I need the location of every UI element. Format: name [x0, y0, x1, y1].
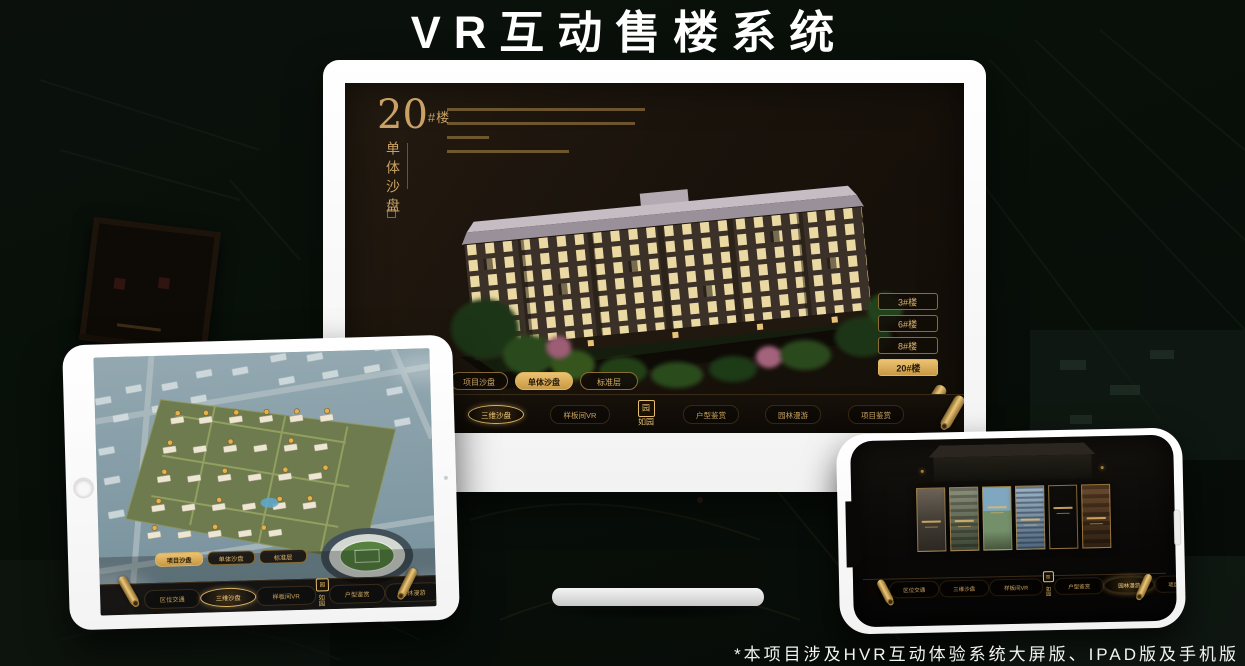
logo-seal-icon: 园	[316, 578, 329, 591]
app-logo[interactable]: 园 如园	[1043, 571, 1055, 602]
floor-button-6[interactable]: 6#楼	[878, 315, 938, 332]
scene-panel[interactable]	[949, 487, 979, 552]
tablet-app-screen: 项目沙盘 单体沙盘 标准层 区位交通 三维沙盘 样板间VR 园 如园 户型鉴赏 …	[93, 348, 436, 615]
view-tabs: 项目沙盘 单体沙盘 标准层	[450, 372, 638, 390]
nav-item-garden-roam[interactable]: 园林漫游	[765, 405, 821, 424]
nav-item-floorplans[interactable]: 户型鉴赏	[1054, 577, 1104, 595]
nav-item-project-gallery[interactable]: 项目鉴赏	[848, 405, 904, 424]
subtitle-divider-line	[407, 143, 408, 189]
app-logo[interactable]: 园 如园	[636, 400, 656, 428]
monitor-stand-base	[552, 588, 764, 606]
scene-panel-gallery	[916, 484, 1111, 552]
nav-item-3d-sandbox[interactable]: 三维沙盘	[939, 579, 989, 597]
scene-panel[interactable]	[1048, 485, 1078, 550]
subtitle-seal-mark	[387, 209, 396, 218]
phone-device: 区位交通 三维沙盘 样板间VR 园 如园 户型鉴赏 园林漫游 项目鉴赏	[836, 427, 1186, 634]
building-3d-render[interactable]	[433, 159, 911, 397]
tab-standard-floor[interactable]: 标准层	[259, 549, 307, 564]
gate-lamp-icon	[921, 470, 924, 473]
plaque-gold-line	[117, 323, 161, 331]
monitor-stand-shadow	[540, 604, 776, 620]
gate-lamp-icon	[1101, 466, 1104, 469]
plaque-seal-mark	[158, 277, 170, 289]
scene-panel[interactable]	[982, 486, 1012, 551]
logo-text: 如园	[636, 418, 656, 428]
nav-item-3d-sandbox-active[interactable]: 三维沙盘	[200, 587, 257, 608]
nav-item-floorplans[interactable]: 户型鉴赏	[683, 405, 739, 424]
nav-item-showroom-vr[interactable]: 样板间VR	[256, 585, 316, 606]
floor-selector: 3#楼 6#楼 8#楼 20#楼	[878, 293, 938, 376]
nav-item-location[interactable]: 区位交通	[889, 581, 939, 599]
tab-project-sandbox-active[interactable]: 项目沙盘	[155, 552, 203, 567]
background-plaque	[79, 217, 221, 356]
nav-item-showroom-vr[interactable]: 样板间VR	[989, 578, 1043, 596]
plaque-seal-mark	[113, 278, 125, 290]
tablet-home-button	[73, 477, 95, 499]
scroll-menu-icon[interactable]	[939, 394, 964, 431]
scene-panel[interactable]	[1081, 484, 1111, 549]
logo-seal-icon: 园	[638, 400, 655, 417]
nav-item-3d-sandbox-active[interactable]: 三维沙盘	[468, 405, 524, 424]
logo-text: 如园	[1043, 582, 1054, 602]
phone-app-screen: 区位交通 三维沙盘 样板间VR 园 如园 户型鉴赏 园林漫游 项目鉴赏	[850, 435, 1177, 628]
logo-seal-icon: 园	[1043, 571, 1054, 582]
phone-speaker-icon	[1174, 509, 1182, 545]
aerial-masterplan[interactable]	[93, 348, 436, 615]
nav-item-floorplans[interactable]: 户型鉴赏	[329, 583, 386, 604]
building-number-title: 20#楼	[377, 95, 450, 135]
scene-panel[interactable]	[916, 487, 946, 552]
courtyard-gate	[933, 454, 1091, 481]
footnote-caption: *本项目涉及HVR互动体验系统大屏版、IPAD版及手机版	[734, 640, 1239, 665]
poster-canvas: VR互动售楼系统 20#楼 单体沙盘	[0, 0, 1245, 666]
tab-single-sandbox[interactable]: 单体沙盘	[207, 550, 255, 565]
building-subtitle-vertical: 单体沙盘	[383, 141, 403, 217]
phone-notch	[845, 501, 861, 567]
tablet-camera-icon	[444, 475, 448, 479]
logo-text: 如园	[316, 591, 330, 611]
app-logo[interactable]: 园 如园	[316, 578, 330, 611]
tab-project-sandbox[interactable]: 项目沙盘	[450, 372, 508, 390]
page-title: VR互动售楼系统	[0, 0, 1245, 56]
tablet-device: 项目沙盘 单体沙盘 标准层 区位交通 三维沙盘 样板间VR 园 如园 户型鉴赏 …	[62, 335, 460, 631]
building-description-lines	[447, 97, 657, 164]
tab-single-sandbox-active[interactable]: 单体沙盘	[515, 372, 573, 390]
scene-panel[interactable]	[1015, 485, 1045, 550]
floor-button-3[interactable]: 3#楼	[878, 293, 938, 310]
tab-standard-floor[interactable]: 标准层	[580, 372, 638, 390]
floor-button-20-active[interactable]: 20#楼	[878, 359, 938, 376]
nav-item-project-gallery[interactable]: 项目鉴赏	[1154, 575, 1177, 593]
floor-button-8[interactable]: 8#楼	[878, 337, 938, 354]
nav-item-location[interactable]: 区位交通	[144, 588, 201, 609]
nav-item-showroom-vr[interactable]: 样板间VR	[550, 405, 610, 424]
phone-bottom-nav: 区位交通 三维沙盘 样板间VR 园 如园 户型鉴赏 园林漫游 项目鉴赏	[863, 573, 1166, 601]
